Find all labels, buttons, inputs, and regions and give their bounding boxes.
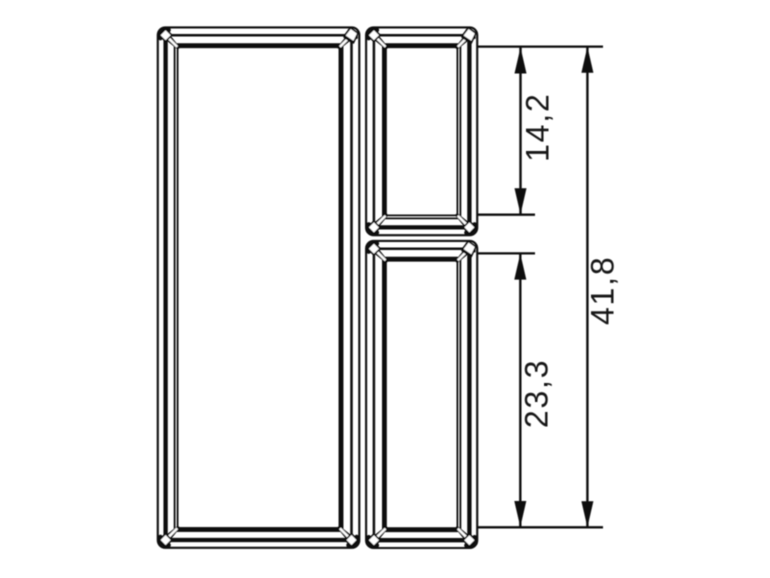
svg-text:23,3: 23,3	[519, 359, 555, 428]
svg-text:41,8: 41,8	[585, 256, 621, 325]
svg-text:14,2: 14,2	[519, 92, 555, 161]
